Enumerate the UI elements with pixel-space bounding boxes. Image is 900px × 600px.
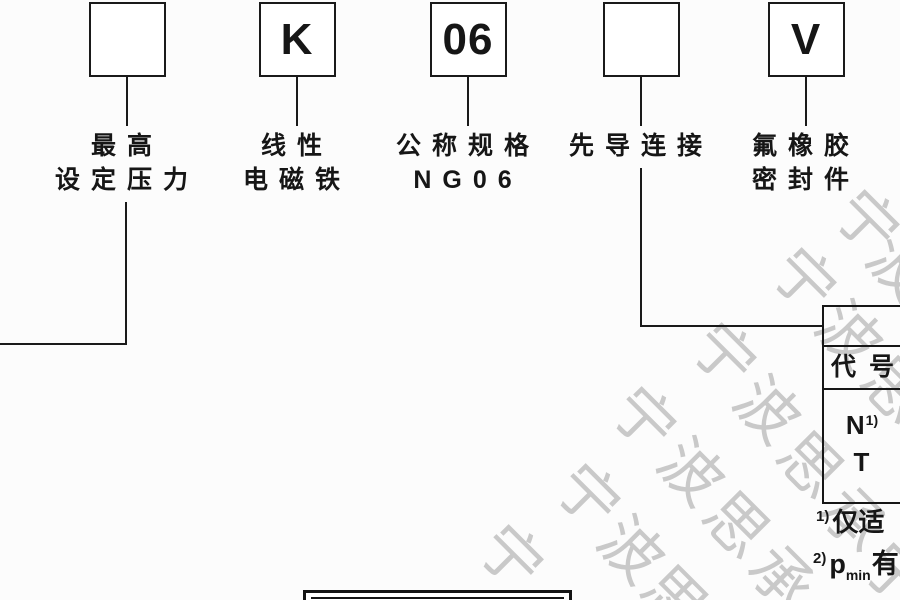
- connector-line-vertical-max-pressure: [125, 202, 127, 345]
- connector-line-horizontal-pilot: [640, 325, 824, 327]
- watermark-glyph: 宁: [466, 514, 554, 600]
- code-value-T: T: [824, 439, 900, 476]
- bottom-table-frame: [303, 590, 572, 600]
- connector-line-horizontal-max-pressure: [0, 343, 127, 345]
- footnote-2: 2)pmin有: [813, 542, 899, 583]
- connector-stem: [640, 77, 642, 126]
- code-superscript: 1): [866, 412, 878, 428]
- connector-stem: [805, 77, 807, 126]
- pilot-connection-code-table: 代号 N1) T: [822, 305, 900, 504]
- watermark-glyph: 波: [855, 224, 900, 312]
- footnote-marker: 2): [813, 550, 826, 567]
- code-text: T: [854, 447, 870, 477]
- watermark-glyph: 波: [586, 507, 674, 595]
- footnote-text: 仅适: [832, 507, 884, 537]
- code-box-V: V: [768, 2, 845, 77]
- code-box-06: 06: [430, 2, 507, 77]
- code-box-blank-1: [89, 2, 166, 77]
- code-text: N: [846, 410, 865, 440]
- connector-stem: [126, 77, 128, 126]
- watermark-glyph: 思: [629, 556, 717, 600]
- footnote-1: 1)仅适: [816, 502, 884, 539]
- table-header-cell-empty: [824, 307, 900, 347]
- footnote-marker: 1): [816, 508, 829, 525]
- watermark-glyph: 波: [646, 429, 734, 517]
- label-line: 密封件: [696, 163, 900, 197]
- code-value-N: N1): [824, 402, 900, 439]
- table-code-cell: N1) T: [824, 390, 900, 502]
- code-box-label: 氟橡胶 密封件: [696, 129, 900, 197]
- watermark-glyph: 宁: [543, 453, 631, 541]
- table-code-header: 代号: [824, 347, 900, 390]
- code-box-K: K: [259, 2, 336, 77]
- watermark-glyph: 波: [722, 367, 810, 455]
- connector-stem: [467, 77, 469, 126]
- connector-line-vertical-pilot: [640, 168, 642, 327]
- code-box-blank-2: [603, 2, 680, 77]
- ordering-code-diagram: 宁波宁波思宁波思承宁宁波思承宁波思宁 最高 设定压力 K 线性 电磁铁 06 公…: [0, 0, 900, 600]
- code-column-seals: V 氟橡胶 密封件: [696, 2, 900, 232]
- watermark-glyph: 思: [691, 482, 779, 570]
- connector-stem: [296, 77, 298, 126]
- label-line: 氟橡胶: [696, 129, 900, 163]
- watermark-glyph: 宁: [599, 376, 687, 464]
- footnote-text: 有: [872, 549, 899, 579]
- footnote-subscript: min: [846, 567, 871, 583]
- watermark-glyph: 承: [736, 535, 824, 600]
- footnote-symbol: p: [829, 549, 846, 579]
- bottom-table-frame-inner-line: [311, 597, 564, 599]
